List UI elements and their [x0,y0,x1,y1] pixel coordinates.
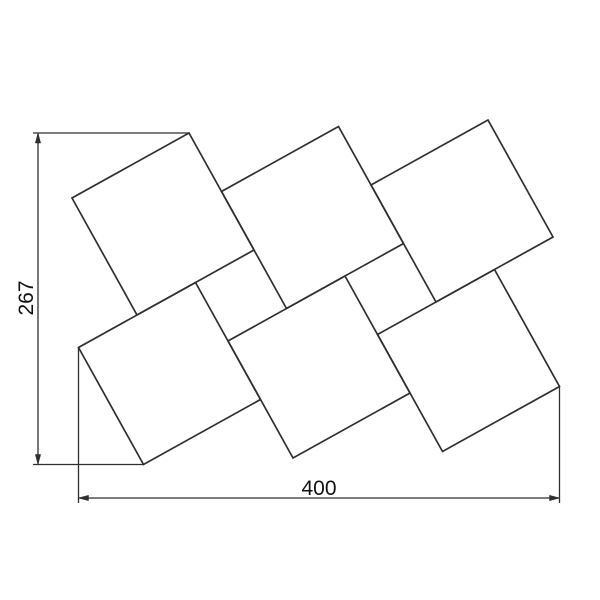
dimension-height-label: 267 [15,280,38,315]
panel-top-right [371,120,553,302]
drawing-page: 267 400 [0,0,600,600]
dimension-arrow-vertical-2 [35,455,40,465]
dimension-width-label: 400 [301,477,336,500]
dimension-horizontal: 400 [79,348,560,504]
dimension-arrow-horizontal-2 [550,495,560,500]
dimension-arrow-vertical-1 [35,133,40,143]
panel-top-left [72,133,254,315]
panel-bottom-middle [228,276,410,458]
panel-bottom-left [79,283,261,465]
technical-drawing: 267 400 [0,0,600,600]
dimension-arrow-horizontal-1 [79,495,89,500]
panel-squares-group [72,120,560,465]
panel-top-middle [222,127,404,309]
panel-bottom-right [378,270,560,452]
dimension-vertical: 267 [15,133,189,465]
